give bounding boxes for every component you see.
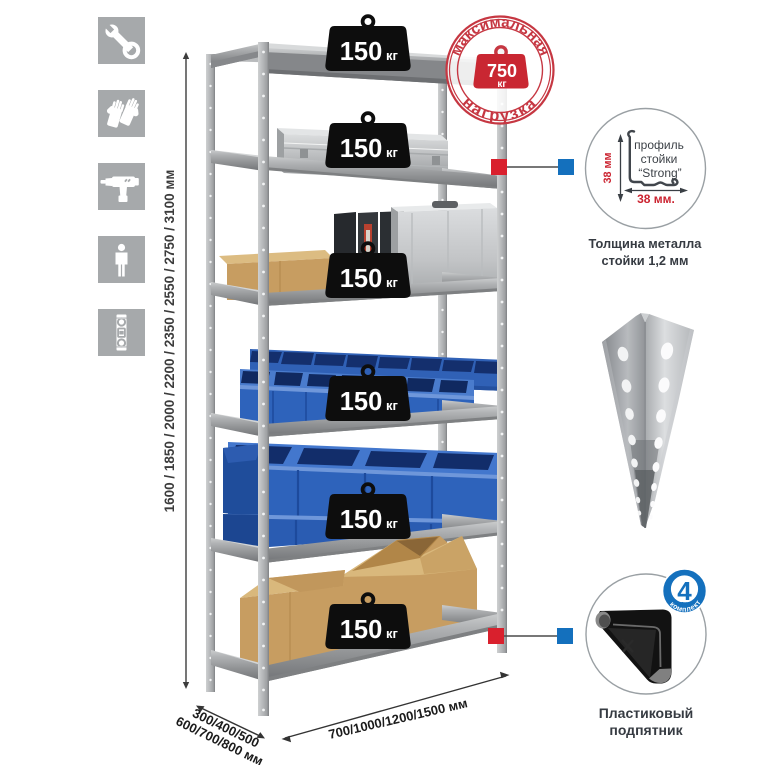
svg-text:кг: кг <box>386 145 399 160</box>
svg-text:38 мм.: 38 мм. <box>637 192 675 206</box>
svg-text:150: 150 <box>340 506 383 534</box>
svg-text:150: 150 <box>340 38 383 66</box>
svg-text:“Strong”: “Strong” <box>638 166 681 180</box>
svg-text:750: 750 <box>487 61 517 81</box>
svg-text:кг: кг <box>386 48 399 63</box>
svg-text:кг: кг <box>386 626 399 641</box>
svg-text:150: 150 <box>340 388 383 416</box>
svg-text:Пластиковый: Пластиковый <box>599 705 694 721</box>
svg-text:150: 150 <box>340 135 383 163</box>
svg-text:150: 150 <box>340 265 383 293</box>
svg-text:150: 150 <box>340 616 383 644</box>
svg-text:кг: кг <box>497 79 506 90</box>
svg-text:1600 / 1850 / 2000 / 2200 / 23: 1600 / 1850 / 2000 / 2200 / 2350 / 2550 … <box>162 170 177 513</box>
svg-text:кг: кг <box>386 516 399 531</box>
svg-text:кг: кг <box>386 275 399 290</box>
svg-text:подпятник: подпятник <box>609 722 683 738</box>
svg-text:профиль: профиль <box>634 138 684 152</box>
svg-text:кг: кг <box>386 398 399 413</box>
svg-text:стойки: стойки <box>641 152 678 166</box>
svg-text:Толщина металла: Толщина металла <box>589 236 703 251</box>
svg-text:38 мм: 38 мм <box>602 152 614 183</box>
svg-text:стойки 1,2 мм: стойки 1,2 мм <box>601 253 688 268</box>
